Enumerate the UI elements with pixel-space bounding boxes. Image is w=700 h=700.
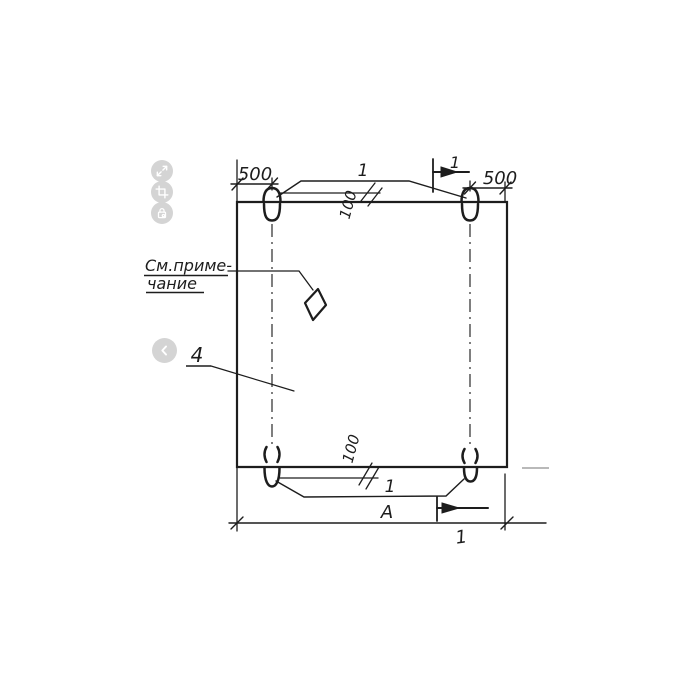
loop-centerlines xyxy=(272,224,470,444)
panel-callout: 4 xyxy=(186,343,294,391)
callout-loops-bottom-label: 1 xyxy=(385,477,396,497)
section-top-label: 1 xyxy=(450,153,460,172)
panel-callout-leader xyxy=(211,366,294,391)
section-bottom-label: 1 xyxy=(454,526,468,548)
technical-drawing: 500 500 100 100 1 1 xyxy=(0,0,700,700)
note-diamond xyxy=(305,289,326,320)
drawing-viewer: 500 500 100 100 1 1 xyxy=(0,0,700,700)
note-line1: См.приме- xyxy=(145,256,232,275)
note-annotation: См.приме- чание xyxy=(144,256,326,320)
callout-loops-top-label: 1 xyxy=(358,161,369,181)
dim-offset-bottom-label: 100 xyxy=(339,433,364,465)
dim-top-right-label: 500 xyxy=(483,168,517,189)
panel-outline xyxy=(237,202,507,467)
dim-width-label: А xyxy=(380,502,393,523)
note-leader xyxy=(228,271,313,290)
dim-top-left-label: 500 xyxy=(238,164,272,185)
leader-loops-top xyxy=(277,181,466,198)
panel-callout-label: 4 xyxy=(191,343,204,367)
section-mark-bottom xyxy=(437,497,488,521)
note-line2: чание xyxy=(147,274,197,293)
